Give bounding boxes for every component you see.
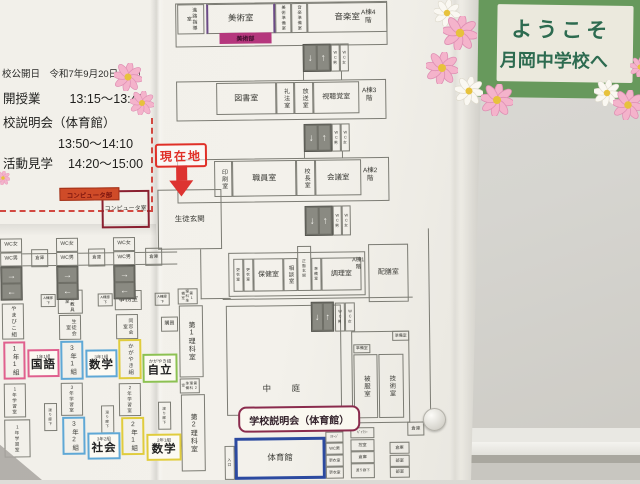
subject-tag-t1: 1年1組国語: [27, 349, 59, 377]
subject-tag-t4: 3年2組社会: [87, 432, 120, 459]
room-wcf3: WC女: [113, 237, 135, 251]
school-session-banner: 学校説明会（体育館）: [238, 405, 360, 432]
room-yamabiko: やまびこ組: [2, 303, 24, 339]
welcome-sign: ようこそ 月岡中学校へ: [477, 0, 640, 99]
stairs-arrow-up-icon: ←: [2, 283, 22, 299]
corridor-line: [342, 151, 343, 157]
class-tag-subject: 自立: [148, 365, 173, 377]
class-tag-room: 2年1組: [157, 439, 171, 444]
staircase: ↓↑: [303, 44, 331, 72]
staircase: ↓↑: [304, 124, 332, 152]
corridor-line: [22, 253, 56, 254]
room-seitokai: 生徒会室: [59, 315, 81, 340]
current-location-arrow-head: [169, 180, 193, 196]
stairs-arrow-down-icon: ↓: [306, 207, 319, 235]
class-tag-subject: 数学: [89, 360, 114, 372]
room-wcm2: WC男: [56, 252, 78, 266]
room-souko4: 倉庫: [407, 421, 424, 435]
corridor-line: [341, 71, 342, 79]
room-watari3: 渡り廊下: [158, 402, 171, 430]
room-rouka3: A棟廊下: [155, 293, 170, 306]
art-club-tag: 美術部: [219, 32, 271, 44]
computer-club-tag: コンピュータ部: [59, 187, 119, 201]
room-wcf2: WC女: [56, 238, 78, 252]
room-c11: 1年1組: [3, 341, 25, 379]
subject-tag-t5: 2年1組数学: [146, 433, 181, 460]
room-awc4m: WC男: [331, 44, 340, 72]
room-awc2m: WC男: [333, 205, 342, 235]
whiteboard-lower: [468, 463, 640, 480]
room-wcm3: WC男: [113, 251, 135, 265]
stairs-arrow-up-icon: ↑: [318, 125, 331, 151]
room-rika1: 第1理科室: [179, 305, 204, 377]
room-souko5: 倉庫: [389, 442, 409, 454]
room-c31: 3年1組: [60, 341, 83, 380]
staircase: →←: [56, 266, 78, 300]
whiteboard-tray-shadow: [468, 455, 640, 463]
stairs-arrow-down-icon: ↓: [312, 303, 323, 331]
room-watari2: 渡り廊下: [101, 405, 114, 433]
corridor-line: [304, 152, 305, 158]
room-awc4f: WC女: [340, 43, 349, 71]
room-iriguchi: 入口: [225, 446, 235, 480]
stairs-arrow-up-icon: ←: [58, 283, 78, 299]
room-awc3f: WC女: [341, 123, 350, 151]
staircase: ↓↑: [311, 302, 334, 332]
room-gwatari: 渡り廊下: [351, 463, 375, 478]
corridor-line: [22, 265, 56, 266]
corridor-line: [78, 252, 114, 253]
floor-outline: [175, 1, 388, 48]
staircase: →←: [0, 266, 22, 300]
room-rika2: 第2理科室: [181, 394, 206, 471]
floor-outline: [228, 251, 366, 297]
current-location-marker: 現在地: [155, 143, 207, 168]
staircase: →←: [113, 265, 135, 299]
corridor-line: [200, 249, 202, 299]
room-hikae: 控室: [350, 439, 374, 451]
corridor-line: [78, 264, 114, 265]
school-floorplan: 現在地 コンピュータ部 美術部 学校説明会（体育館） 進路指導室美術室美術準備室…: [0, 0, 489, 484]
room-koubai: 購買: [161, 316, 178, 331]
room-wcm1: WC男: [0, 252, 22, 266]
floor-outline: [177, 157, 390, 204]
stairs-arrow-down-icon: ↓: [305, 125, 318, 151]
stairs-arrow-down-icon: →: [1, 267, 21, 283]
class-tag-subject: 国語: [31, 360, 56, 372]
room-gkoui1: 更衣室: [326, 454, 344, 466]
room-awc3m: WC男: [332, 123, 341, 151]
floorplan-paper: 校公開日 令和7年9月20日（土） 開授業 13:15～13:40 校説明会（体…: [0, 0, 486, 480]
room-g3a: 3年学習室: [61, 383, 83, 416]
stairs-arrow-down-icon: →: [57, 267, 77, 283]
stairs-arrow-down-icon: ↓: [304, 45, 317, 71]
room-g2a: 2年学習室: [119, 383, 141, 416]
room-rika2jun: 第2理科準備室: [180, 378, 200, 393]
floor-outline: [351, 331, 410, 424]
welcome-line-1: ようこそ: [497, 13, 633, 45]
class-tag-room: 3年2組: [97, 437, 111, 442]
room-bushitsu1: 部室: [390, 455, 410, 467]
room-gkoui2: 更衣室: [326, 466, 344, 478]
room-cwcm: WC男: [335, 302, 345, 331]
stairs-arrow-down-icon: →: [114, 266, 134, 282]
magnet: [423, 408, 446, 431]
room-cwcf: WC女: [345, 302, 355, 331]
room-stage: ｽﾃｰｼﾞ: [325, 431, 343, 442]
class-tag-subject: 社会: [91, 443, 116, 455]
room-taiiku: 体育館: [234, 437, 326, 480]
corridor-line: [428, 228, 431, 426]
stairs-arrow-up-icon: ←: [115, 282, 135, 298]
floor-outline: [176, 79, 386, 122]
room-watari1: 渡り廊下: [44, 403, 57, 431]
stairs-arrow-up-icon: ↑: [319, 207, 332, 235]
whiteboard-tray: [468, 428, 640, 442]
staircase: ↓↑: [305, 206, 333, 236]
room-gsouko: 倉庫: [351, 451, 375, 463]
room-wcf1: WC女: [0, 238, 22, 252]
welcome-sign-panel: ようこそ 月岡中学校へ: [497, 4, 634, 83]
room-g1a: 1年学習室: [4, 383, 26, 417]
subject-tag-t3: かがやき組自立: [142, 354, 177, 383]
stairs-arrow-up-icon: ↑: [317, 45, 330, 71]
room-haizen: 配膳室: [368, 244, 409, 302]
room-kagayaki: かがやき組: [118, 339, 141, 379]
current-location-arrow: [176, 165, 187, 180]
corridor-line: [303, 72, 304, 80]
room-dousou: 同窓会室: [116, 314, 138, 339]
room-c32: 3年2組: [62, 417, 85, 455]
room-gwcm: WC男: [325, 442, 343, 454]
room-rouka1: A棟廊下: [41, 294, 56, 307]
whiteboard-tray-face: [468, 442, 640, 455]
welcome-line-2: 月岡中学校へ: [497, 46, 633, 74]
stairs-arrow-up-icon: ↑: [322, 303, 333, 331]
subject-tag-t2: 3年1組数学: [85, 349, 117, 377]
room-c21: 2年1組: [121, 417, 144, 455]
class-tag-subject: 数学: [151, 444, 176, 456]
photo-of-school-map: 校公開日 令和7年9月20日（土） 開授業 13:15～13:40 校説明会（体…: [0, 0, 640, 480]
room-rika1jun: 第1理科準備室: [178, 288, 198, 304]
room-awc2f: WC女: [342, 205, 351, 235]
room-bushitsu2: 部室: [390, 467, 410, 478]
room-rouka2: A棟廊下: [98, 293, 113, 306]
